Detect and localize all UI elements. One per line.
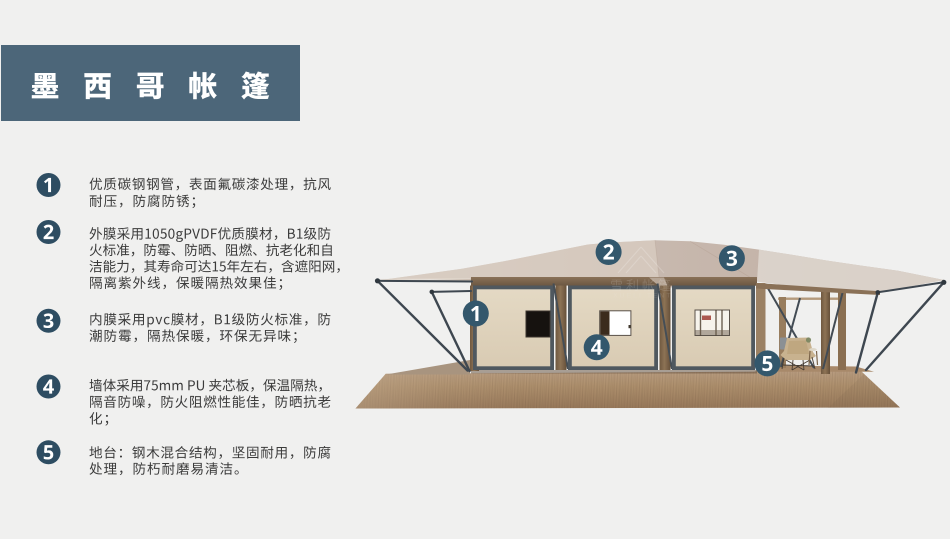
svg-text:XUELI TENT: XUELI TENT	[613, 293, 672, 300]
